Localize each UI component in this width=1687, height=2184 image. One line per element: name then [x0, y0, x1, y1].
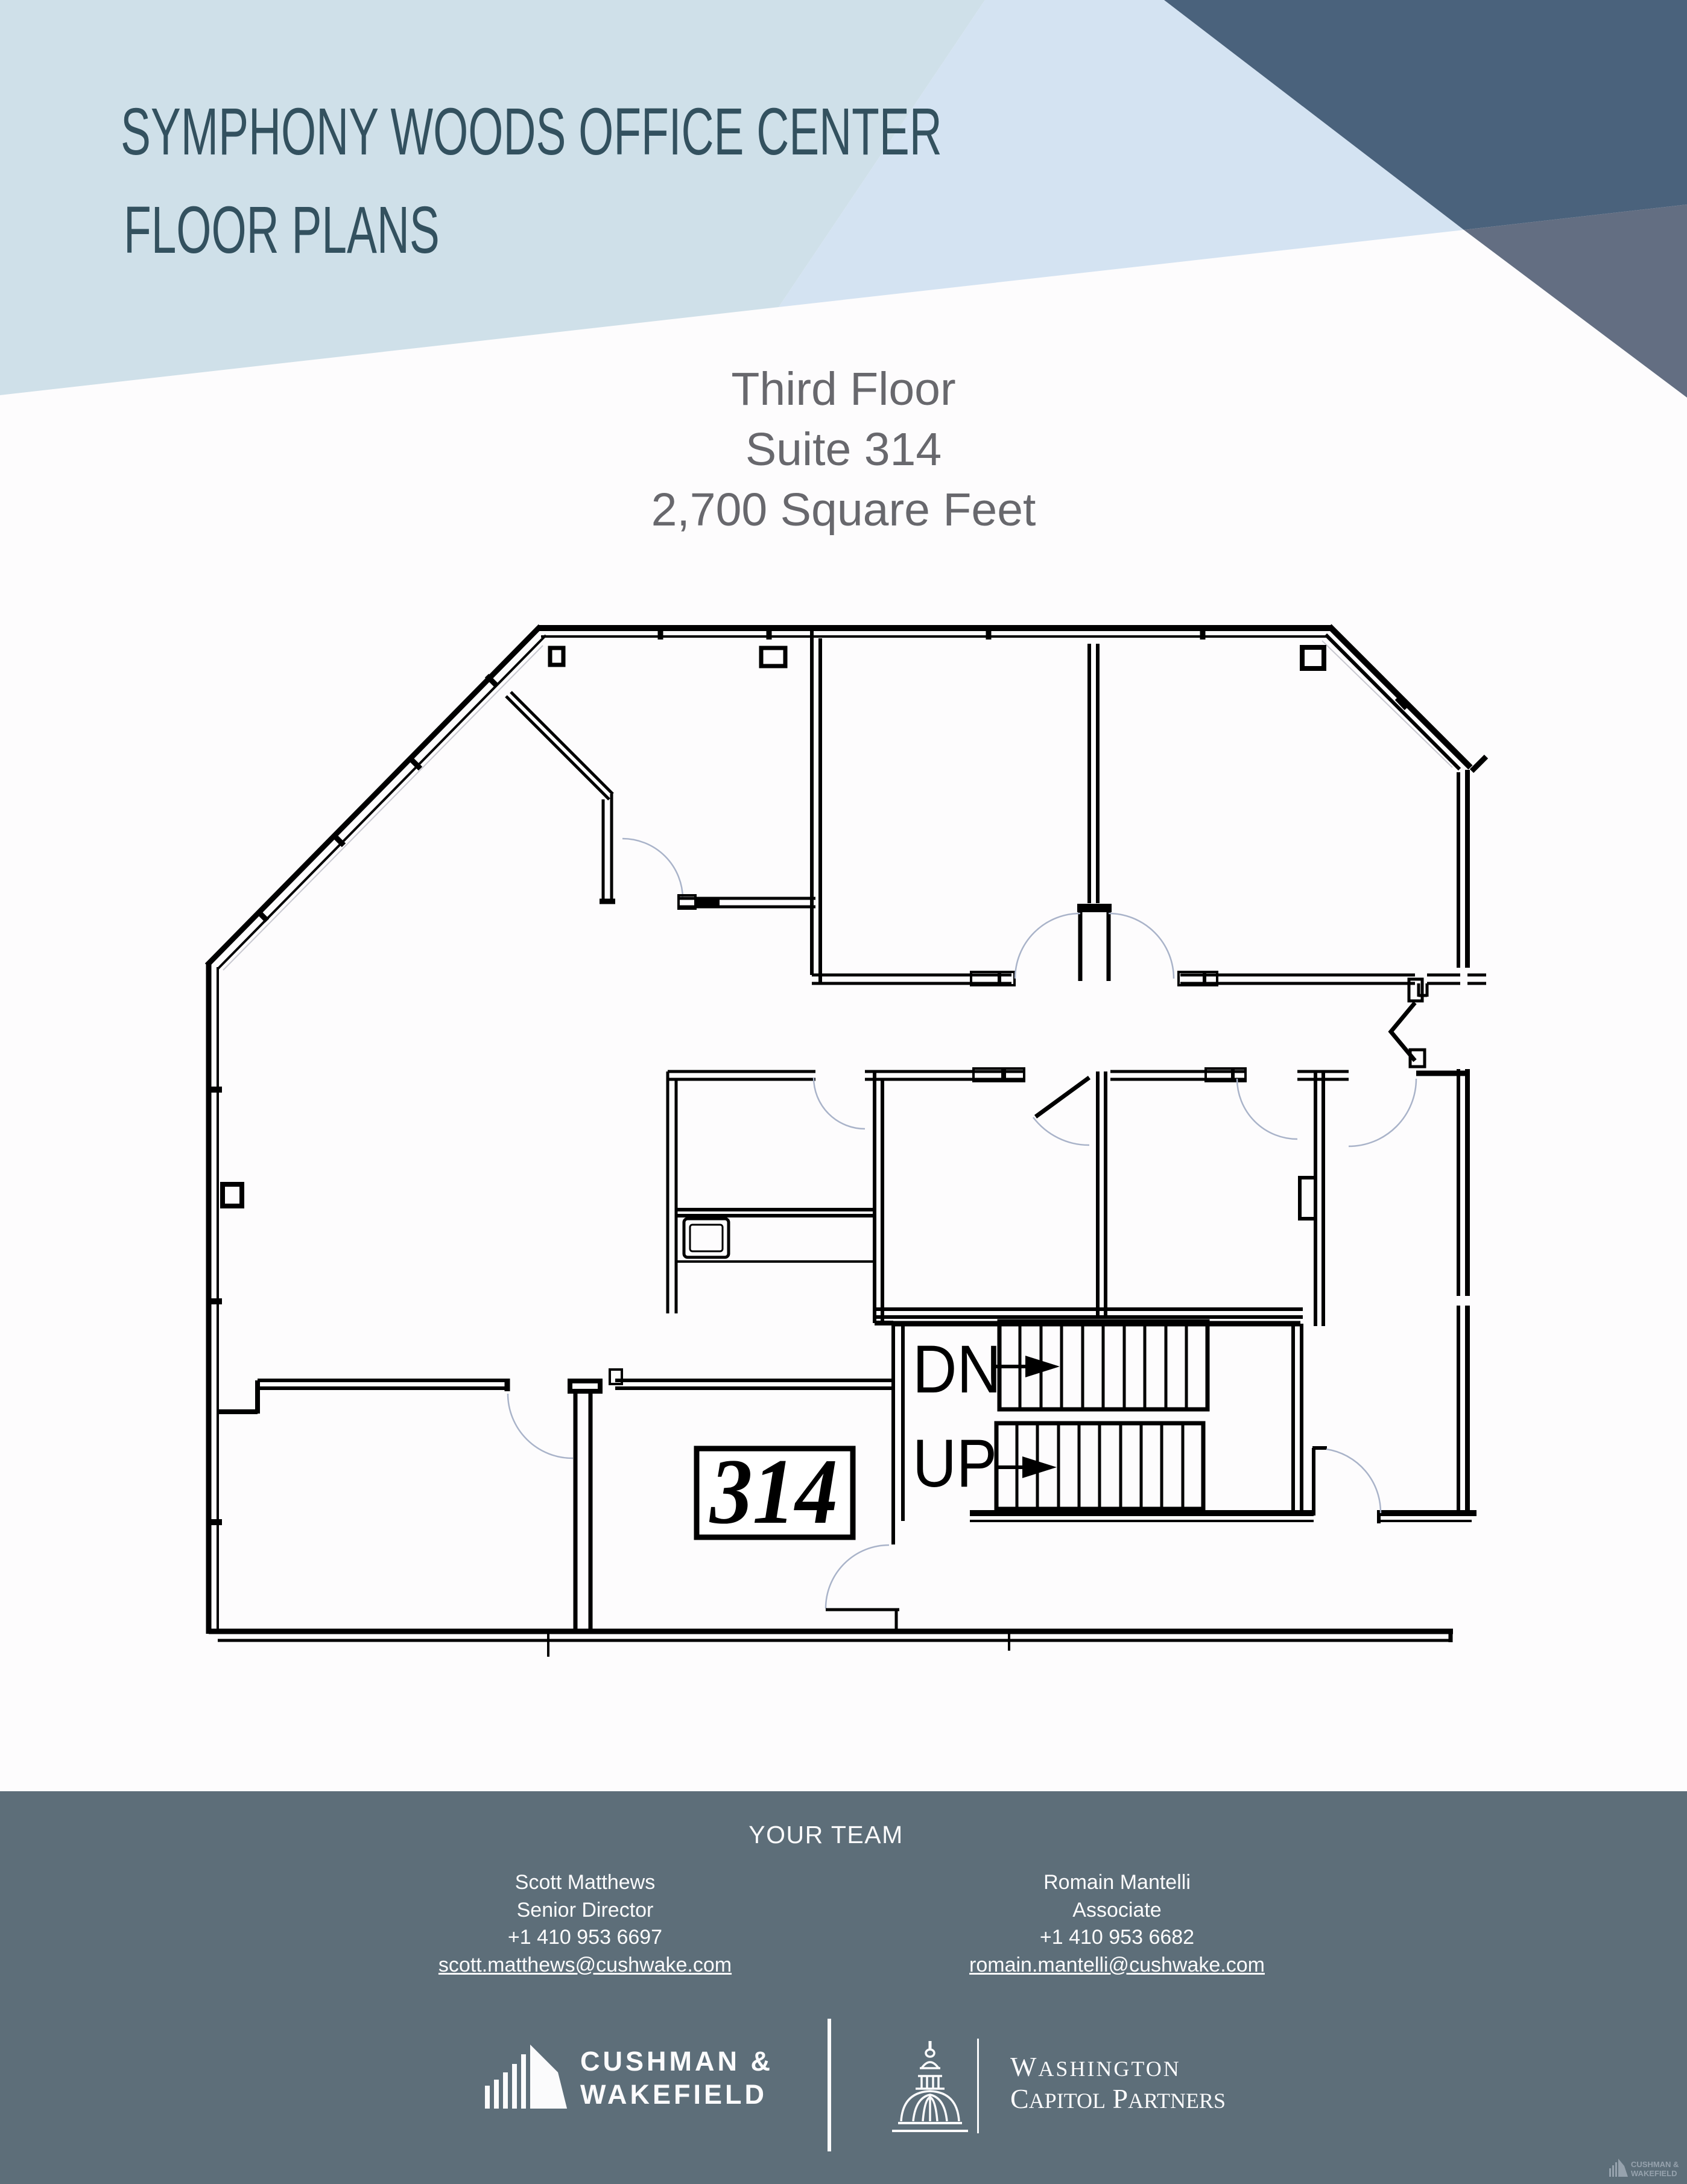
svg-text:CAPITOL PARTNERS: CAPITOL PARTNERS	[1010, 2083, 1226, 2114]
svg-text:WAKEFIELD: WAKEFIELD	[580, 2079, 767, 2110]
svg-text:DN: DN	[913, 1332, 1001, 1407]
svg-text:UP: UP	[913, 1426, 997, 1501]
svg-text:WASHINGTON: WASHINGTON	[1010, 2051, 1181, 2082]
svg-text:WAKEFIELD: WAKEFIELD	[1631, 2169, 1677, 2178]
svg-text:CUSHMAN &: CUSHMAN &	[580, 2046, 773, 2077]
svg-text:CUSHMAN &: CUSHMAN &	[1631, 2160, 1679, 2169]
svg-text:314: 314	[709, 1440, 838, 1543]
